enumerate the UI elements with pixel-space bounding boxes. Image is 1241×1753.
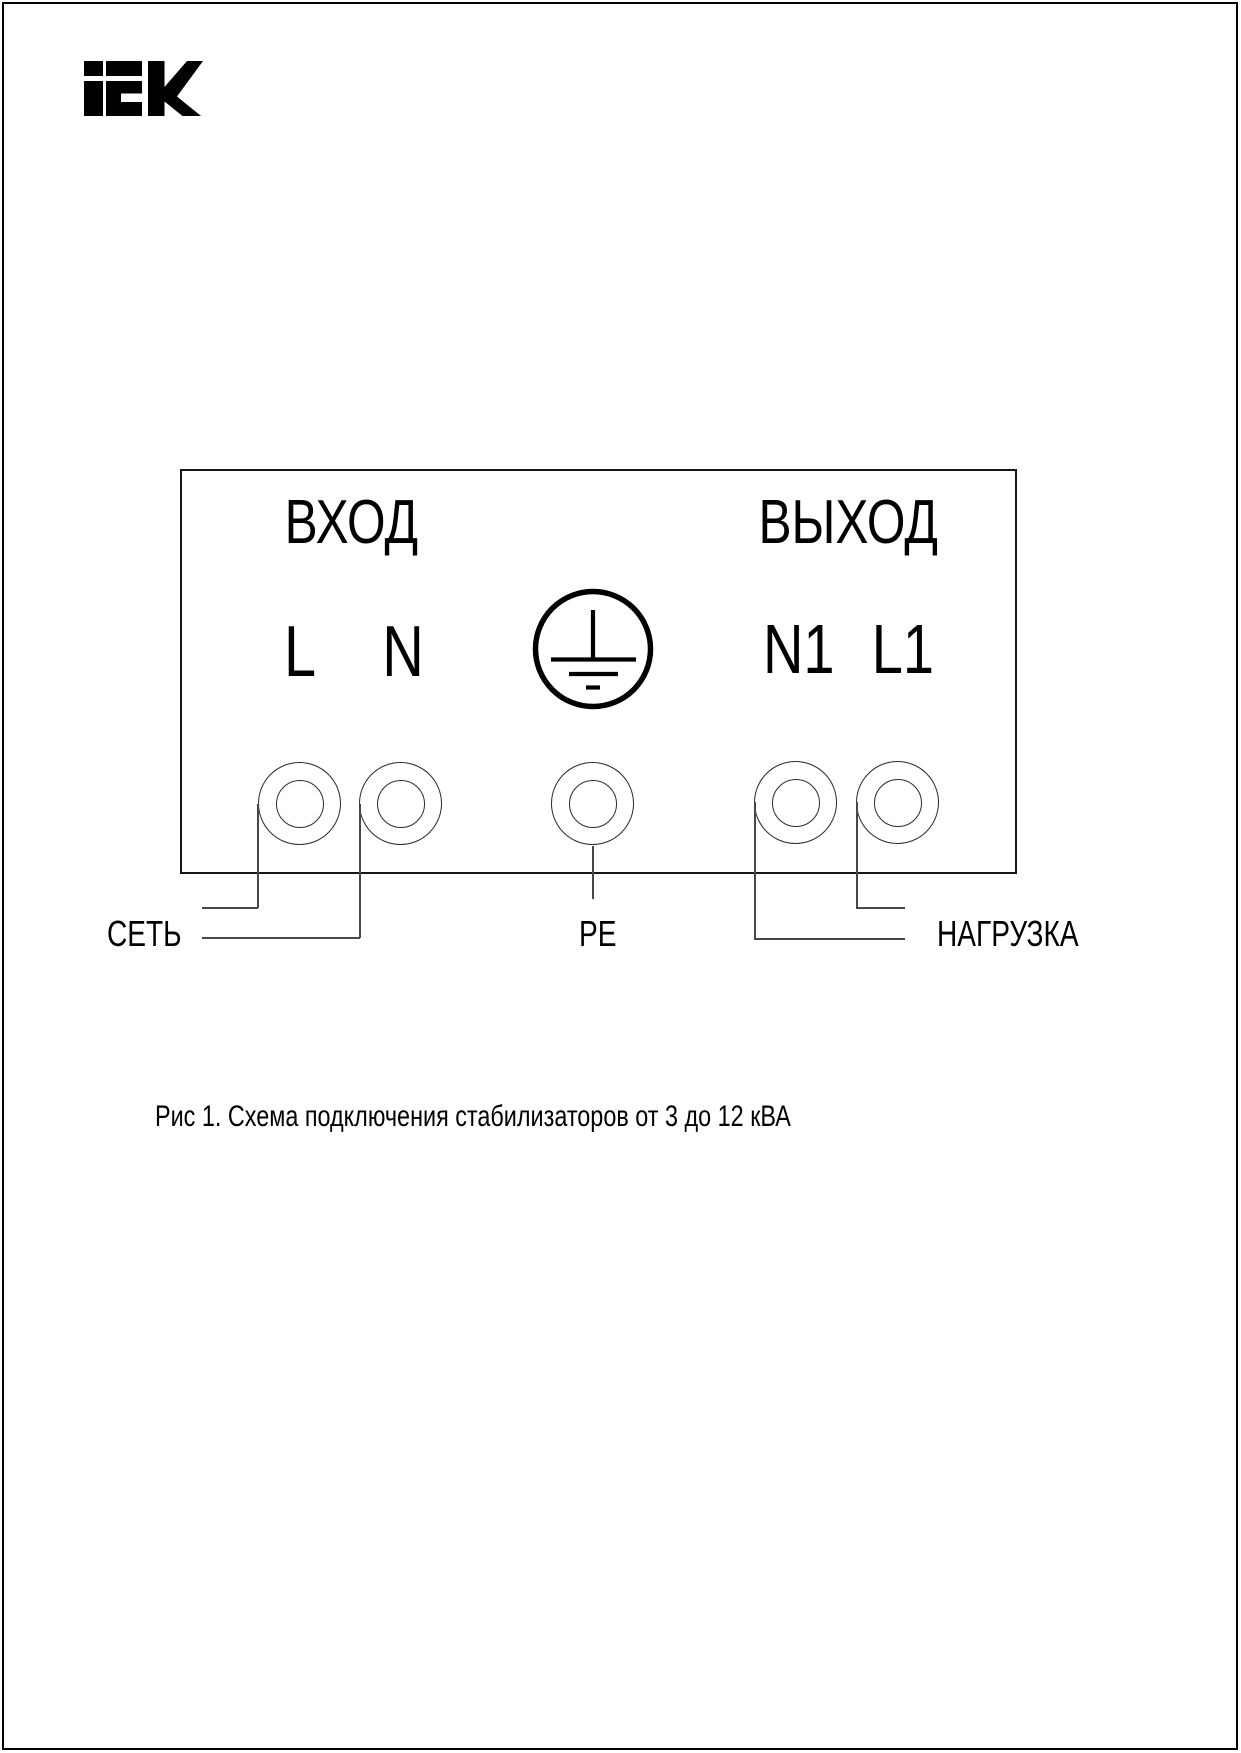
figure-caption: Рис 1. Схема подключения стабилизаторов …: [155, 1102, 970, 1132]
output-section-label: ВЫХОД: [718, 492, 978, 554]
iek-logo-svg: [84, 56, 204, 118]
wire-n-vertical: [359, 804, 361, 938]
terminal-l1-hole: [874, 779, 922, 827]
pe-label: PE: [579, 916, 627, 952]
input-section-label: ВХОД: [221, 492, 481, 554]
terminal-n: [359, 762, 442, 845]
logo-e-body: [106, 81, 142, 116]
terminal-label-n: N: [273, 616, 533, 688]
protective-earth-svg: [532, 588, 654, 710]
wire-n1-vertical: [754, 802, 756, 939]
wire-l-horizontal: [202, 907, 258, 909]
wire-n-horizontal: [202, 937, 360, 939]
logo-k-arms: [165, 61, 204, 116]
terminal-pe-hole: [569, 780, 617, 828]
terminal-l: [258, 762, 341, 845]
wire-l1-horizontal: [856, 907, 905, 909]
terminal-label-l1: L1: [773, 614, 1033, 684]
terminal-pe: [551, 762, 634, 845]
logo-k-stem: [148, 61, 165, 116]
logo-i-stem: [84, 81, 103, 116]
protective-earth-icon: [532, 588, 654, 710]
wire-pe-vertical: [592, 846, 594, 899]
terminal-n1-hole: [772, 779, 820, 827]
mains-label: СЕТЬ: [107, 916, 203, 952]
iek-logo-icon: [84, 56, 204, 118]
load-label: НАГРУЗКА: [937, 916, 1119, 952]
terminal-n1: [754, 761, 837, 844]
logo-e-top: [106, 61, 142, 76]
page-border: [2, 2, 1238, 1750]
terminal-l1: [856, 761, 939, 844]
wire-n1-horizontal: [754, 938, 905, 940]
terminal-n-hole: [377, 780, 425, 828]
terminal-l-hole: [276, 780, 324, 828]
wire-l1-vertical: [856, 802, 858, 908]
logo-i-dot: [84, 61, 103, 76]
wire-l-vertical: [257, 804, 259, 908]
manual-page: ВХОД ВЫХОД L N N1 L1 СЕТЬ PE НАГРУЗКА Ри…: [0, 0, 1241, 1753]
